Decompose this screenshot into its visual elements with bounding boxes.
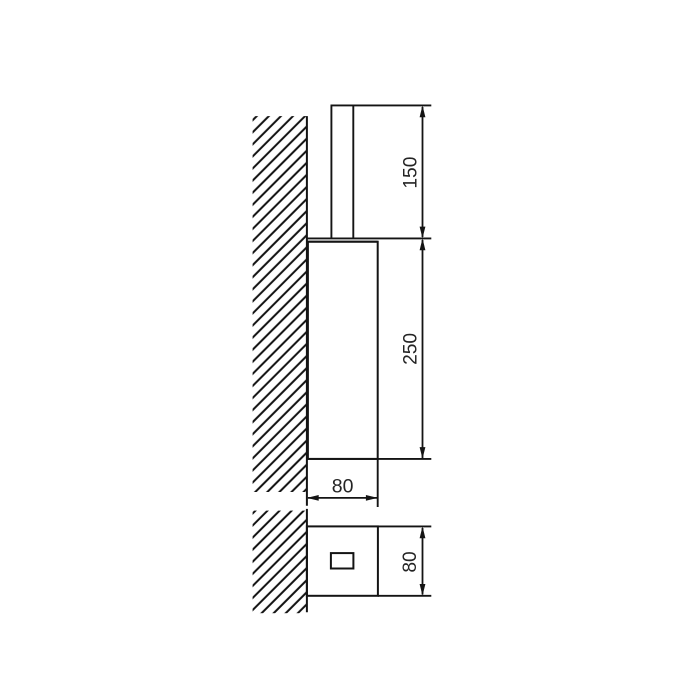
- svg-text:150: 150: [400, 157, 421, 189]
- svg-text:80: 80: [332, 476, 354, 498]
- svg-text:80: 80: [400, 551, 421, 572]
- svg-text:250: 250: [400, 333, 421, 365]
